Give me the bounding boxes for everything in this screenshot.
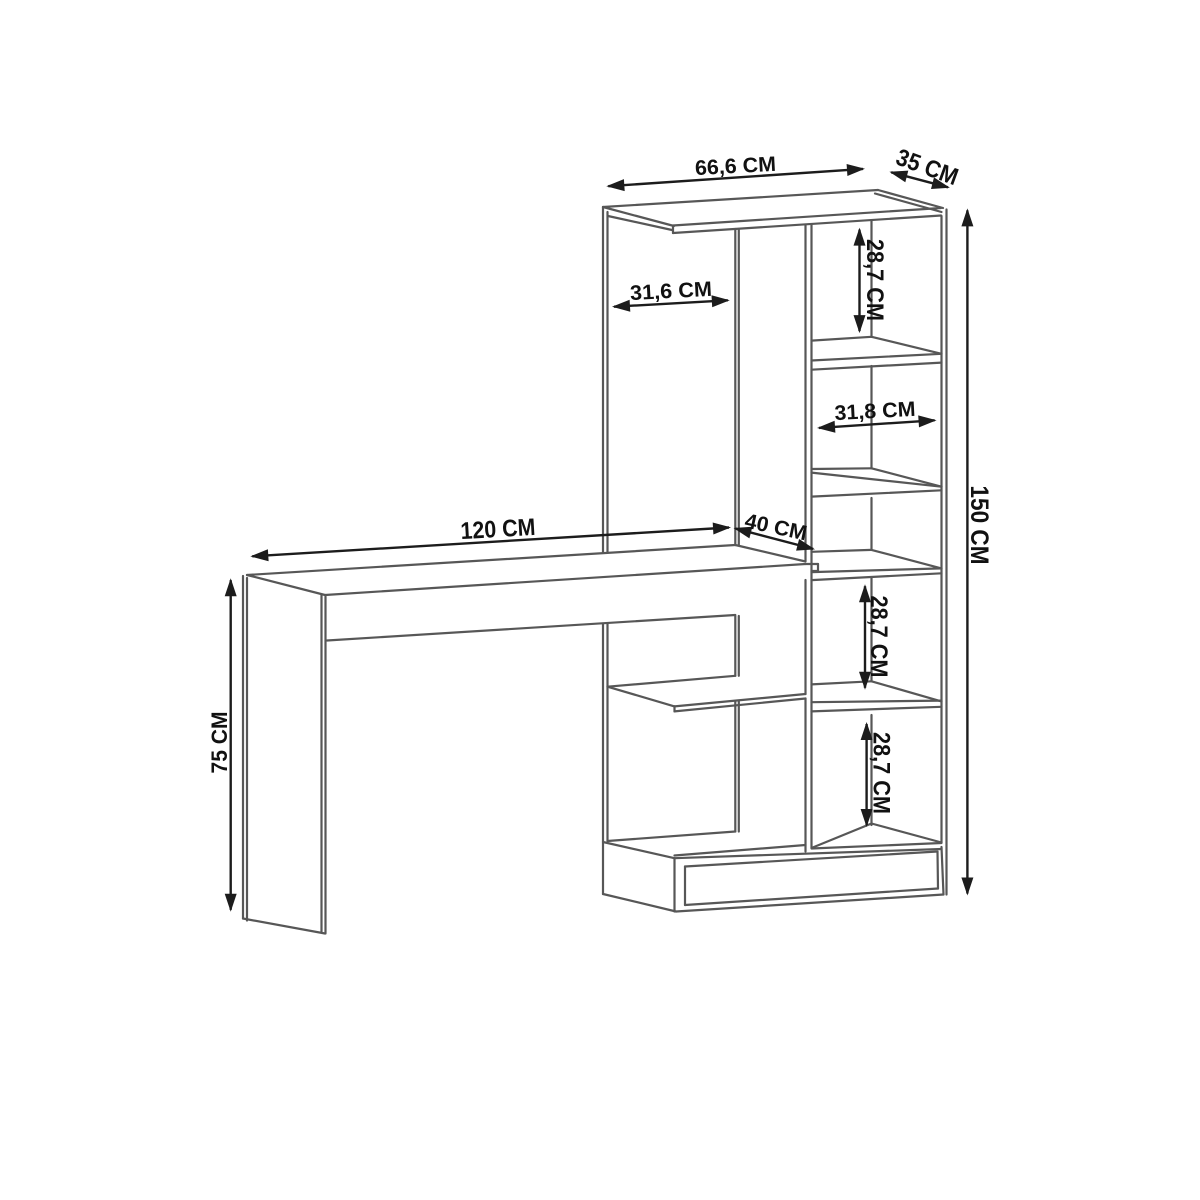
svg-text:120 CM: 120 CM [460, 514, 536, 545]
svg-text:66,6 CM: 66,6 CM [694, 153, 776, 180]
svg-text:28,7 CM: 28,7 CM [861, 239, 888, 321]
svg-text:28,7 CM: 28,7 CM [868, 732, 895, 814]
svg-text:28,7 CM: 28,7 CM [865, 596, 892, 678]
svg-text:150 CM: 150 CM [965, 486, 993, 565]
svg-text:31,8 CM: 31,8 CM [834, 398, 916, 425]
svg-text:75 CM: 75 CM [207, 712, 232, 774]
svg-text:31,6 CM: 31,6 CM [629, 278, 712, 305]
